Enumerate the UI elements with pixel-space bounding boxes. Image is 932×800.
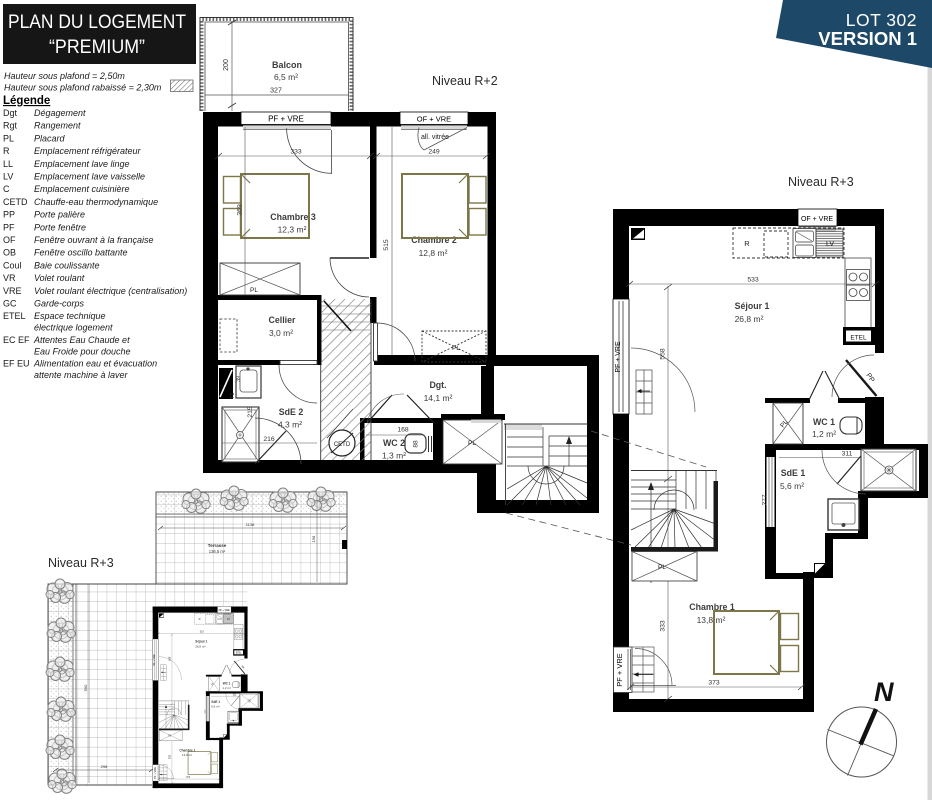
- svg-text:Fenêtre ouvrant à la française: Fenêtre ouvrant à la française: [34, 235, 154, 245]
- svg-text:GC: GC: [3, 299, 17, 309]
- svg-text:Emplacement cuisinière: Emplacement cuisinière: [34, 184, 130, 194]
- svg-text:Alimentation eau et évacuation: Alimentation eau et évacuation: [33, 359, 157, 369]
- svg-text:attente machine à laver: attente machine à laver: [34, 370, 129, 380]
- svg-text:12,3 m²: 12,3 m²: [278, 225, 307, 235]
- svg-text:Porte fenêtre: Porte fenêtre: [34, 222, 86, 232]
- svg-text:WC 2: WC 2: [383, 438, 405, 448]
- svg-text:4,3 m²: 4,3 m²: [278, 420, 302, 430]
- svg-text:136,5 m²: 136,5 m²: [209, 549, 226, 554]
- svg-text:198: 198: [311, 535, 316, 542]
- svg-text:333: 333: [660, 620, 667, 632]
- svg-text:3,0 m²: 3,0 m²: [269, 328, 293, 338]
- svg-text:215: 215: [247, 406, 254, 418]
- svg-text:5,6 m²: 5,6 m²: [780, 481, 804, 491]
- svg-text:LL: LL: [3, 159, 13, 169]
- svg-text:26,8 m²: 26,8 m²: [735, 314, 764, 324]
- svg-text:168: 168: [397, 427, 409, 434]
- svg-text:Coul: Coul: [3, 260, 22, 270]
- svg-text:Chauffe-eau thermodynamique: Chauffe-eau thermodynamique: [34, 197, 158, 207]
- svg-text:369: 369: [237, 204, 244, 216]
- svg-text:T1: T1: [230, 393, 236, 399]
- svg-text:Balcon: Balcon: [272, 60, 302, 70]
- svg-text:333: 333: [290, 149, 302, 156]
- svg-text:12,8 m²: 12,8 m²: [419, 248, 448, 258]
- svg-text:OF: OF: [3, 235, 16, 245]
- svg-text:VR: VR: [3, 273, 16, 283]
- svg-text:EC EF: EC EF: [3, 335, 30, 345]
- svg-text:PF + VRE: PF + VRE: [615, 341, 622, 373]
- svg-text:249: 249: [428, 149, 440, 156]
- svg-text:200: 200: [223, 59, 230, 71]
- svg-text:311: 311: [842, 451, 853, 458]
- svg-text:Cellier: Cellier: [269, 315, 296, 325]
- svg-text:LOT 302: LOT 302: [846, 10, 917, 30]
- svg-text:Dgt: Dgt: [3, 108, 18, 118]
- svg-text:533: 533: [747, 277, 759, 284]
- svg-text:“PREMIUM”: “PREMIUM”: [49, 36, 145, 58]
- svg-text:PP: PP: [3, 210, 15, 220]
- svg-text:Volet roulant: Volet roulant: [34, 273, 85, 283]
- svg-text:Dgt.: Dgt.: [429, 380, 446, 390]
- svg-text:PL: PL: [658, 564, 666, 571]
- svg-text:Rgt: Rgt: [3, 121, 18, 131]
- svg-text:OF + VRE: OF + VRE: [801, 216, 833, 223]
- svg-text:216: 216: [263, 436, 275, 443]
- svg-text:Porte palière: Porte palière: [34, 210, 85, 220]
- svg-text:298: 298: [101, 764, 108, 769]
- svg-text:EF EU: EF EU: [3, 359, 30, 369]
- svg-text:515: 515: [383, 239, 390, 251]
- svg-text:VRE: VRE: [3, 286, 22, 296]
- svg-text:PL: PL: [452, 345, 460, 352]
- svg-text:Emplacement réfrigérateur: Emplacement réfrigérateur: [34, 146, 142, 156]
- svg-text:Chambre 2: Chambre 2: [411, 235, 457, 245]
- svg-text:1138: 1138: [246, 522, 255, 527]
- svg-text:PLAN DU LOGEMENT: PLAN DU LOGEMENT: [8, 11, 186, 33]
- svg-text:OF + VRE: OF + VRE: [417, 115, 451, 124]
- svg-text:Fenêtre oscillo battante: Fenêtre oscillo battante: [34, 248, 128, 258]
- svg-text:PL: PL: [3, 133, 14, 143]
- svg-text:Espace technique: Espace technique: [34, 311, 106, 321]
- svg-text:CETD: CETD: [3, 197, 28, 207]
- svg-text:R: R: [744, 239, 750, 248]
- svg-text:Baie coulissante: Baie coulissante: [34, 260, 100, 270]
- svg-text:PL: PL: [250, 287, 258, 294]
- svg-text:88: 88: [413, 440, 420, 448]
- svg-text:Hauteur sous plafond rabaissé: Hauteur sous plafond rabaissé = 2,30m: [4, 83, 162, 93]
- svg-text:PF + VRE: PF + VRE: [615, 653, 624, 687]
- svg-text:277: 277: [762, 494, 769, 506]
- svg-text:PL: PL: [468, 440, 476, 447]
- svg-text:ETEL: ETEL: [850, 335, 867, 342]
- svg-text:Dégagement: Dégagement: [34, 108, 86, 118]
- svg-text:Hauteur sous plafond = 2,50m: Hauteur sous plafond = 2,50m: [4, 71, 125, 81]
- svg-text:Séjour 1: Séjour 1: [735, 301, 770, 311]
- svg-text:Niveau R+2: Niveau R+2: [432, 74, 498, 88]
- svg-text:39: 39: [236, 376, 242, 382]
- svg-text:ETEL: ETEL: [3, 311, 26, 321]
- svg-text:VERSION 1: VERSION 1: [818, 28, 917, 49]
- svg-text:R: R: [3, 146, 10, 156]
- svg-text:OB: OB: [3, 248, 16, 258]
- svg-text:6,5 m²: 6,5 m²: [274, 72, 298, 82]
- svg-text:1,2 m²: 1,2 m²: [812, 429, 836, 439]
- svg-text:LV: LV: [3, 172, 13, 182]
- svg-text:SdE 2: SdE 2: [279, 407, 304, 417]
- svg-text:SdE 1: SdE 1: [781, 468, 806, 478]
- svg-text:PF: PF: [3, 222, 15, 232]
- svg-text:all. vitrée: all. vitrée: [421, 134, 449, 141]
- svg-text:électrique logement: électrique logement: [34, 323, 113, 333]
- svg-text:CETD: CETD: [334, 442, 351, 448]
- svg-text:Terrasse: Terrasse: [208, 543, 227, 548]
- svg-text:Rangement: Rangement: [34, 121, 81, 131]
- svg-text:590: 590: [83, 684, 88, 691]
- svg-text:Eau Froide pour douche: Eau Froide pour douche: [34, 346, 131, 356]
- svg-text:13,8 m²: 13,8 m²: [697, 615, 726, 625]
- svg-text:LV: LV: [826, 241, 834, 248]
- svg-text:Niveau R+3: Niveau R+3: [48, 556, 114, 570]
- svg-text:WC 1: WC 1: [813, 417, 835, 427]
- svg-text:Emplacement lave vaisselle: Emplacement lave vaisselle: [34, 172, 145, 182]
- svg-text:Attentes Eau Chaude et: Attentes Eau Chaude et: [33, 335, 130, 345]
- svg-text:Garde-corps: Garde-corps: [34, 299, 85, 309]
- svg-text:Placard: Placard: [34, 133, 66, 143]
- svg-text:C: C: [3, 184, 10, 194]
- svg-text:Niveau R+3: Niveau R+3: [788, 175, 854, 189]
- svg-text:Légende: Légende: [3, 95, 50, 107]
- svg-text:Emplacement lave linge: Emplacement lave linge: [34, 159, 130, 169]
- svg-text:1,3 m²: 1,3 m²: [382, 451, 406, 461]
- svg-text:327: 327: [270, 88, 282, 95]
- svg-text:N: N: [874, 677, 894, 707]
- svg-text:373: 373: [708, 680, 720, 687]
- svg-text:Volet roulant électrique (cent: Volet roulant électrique (centralisation…: [34, 286, 187, 296]
- svg-text:PF + VRE: PF + VRE: [268, 115, 304, 124]
- svg-text:14,1 m²: 14,1 m²: [424, 393, 453, 403]
